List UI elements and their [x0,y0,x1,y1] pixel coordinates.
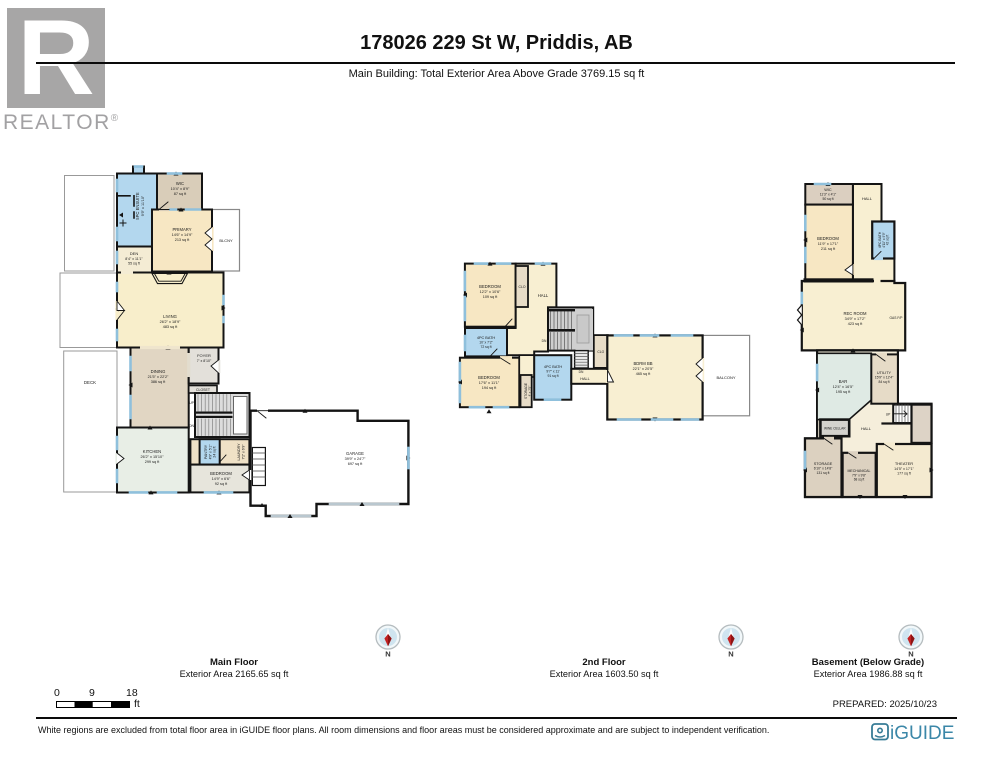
svg-text:12'4" x 16'5": 12'4" x 16'5" [833,385,854,389]
svg-text:iGUIDE: iGUIDE [890,723,954,743]
svg-text:BLCNY: BLCNY [219,238,233,243]
svg-text:195 sq ft: 195 sq ft [836,390,852,394]
svg-text:26'2" x 18'9": 26'2" x 18'9" [160,320,181,324]
svg-text:4PC BATH: 4PC BATH [544,365,563,369]
svg-text:CLO: CLO [597,350,604,354]
svg-text:92 sq ft: 92 sq ft [215,482,228,486]
svg-text:LAUNDRY: LAUNDRY [237,443,241,461]
svg-text:72 sq ft: 72 sq ft [480,345,491,349]
svg-text:177 sq ft: 177 sq ft [897,472,911,476]
svg-text:34'9" x 17'2": 34'9" x 17'2" [845,317,866,321]
svg-text:14'5" x 17'1": 14'5" x 17'1" [894,467,914,471]
svg-text:42 sq ft: 42 sq ft [886,235,890,246]
svg-text:4PC BATH: 4PC BATH [477,336,496,340]
svg-text:PANTRY: PANTRY [204,444,208,459]
svg-text:5PC ENSUITE: 5PC ENSUITE [135,192,140,220]
svg-text:BAR: BAR [839,379,848,384]
svg-text:483 sq ft: 483 sq ft [163,325,179,329]
svg-text:39'9" x 24'7": 39'9" x 24'7" [345,457,366,461]
svg-text:WIC: WIC [824,188,832,192]
svg-text:UP: UP [189,401,195,405]
svg-text:HALL: HALL [862,196,873,201]
svg-text:DN: DN [189,424,195,428]
svg-text:REC ROOM: REC ROOM [843,311,867,316]
svg-text:697 sq ft: 697 sq ft [348,462,364,466]
svg-text:BEDROOM: BEDROOM [817,236,839,241]
svg-text:HALL: HALL [861,426,872,431]
svg-text:131 sq ft: 131 sq ft [816,471,829,475]
svg-text:HALL: HALL [580,377,590,381]
svg-text:BEDROOM: BEDROOM [479,284,501,289]
svg-text:KITCHEN: KITCHEN [143,449,161,454]
svg-text:109 sq ft: 109 sq ft [483,295,499,299]
svg-text:84 sq ft: 84 sq ft [878,380,889,384]
svg-text:GARAGE: GARAGE [346,451,364,456]
svg-text:7'2" x 6'9": 7'2" x 6'9" [242,444,246,460]
svg-text:UP: UP [886,413,891,417]
svg-text:14'9" x 6'6": 14'9" x 6'6" [212,477,231,481]
svg-text:BALCONY: BALCONY [716,375,735,380]
svg-text:6'10" x 14'8": 6'10" x 14'8" [814,467,833,471]
svg-text:MECHANICAL: MECHANICAL [848,469,871,473]
svg-text:17'6" x 11'1": 17'6" x 11'1" [479,381,500,385]
svg-text:STORAGE: STORAGE [814,462,833,466]
svg-text:10'4" x 8'9": 10'4" x 8'9" [171,187,190,191]
svg-text:9'7" x 11': 9'7" x 11' [546,370,560,374]
svg-text:BEDROOM: BEDROOM [478,375,500,380]
svg-text:BDRM BB: BDRM BB [633,361,652,366]
svg-text:WIC: WIC [176,181,184,186]
svg-text:194 sq ft: 194 sq ft [482,386,498,390]
svg-text:FOYER: FOYER [197,353,211,358]
svg-text:386 sq ft: 386 sq ft [151,380,167,384]
svg-text:HALL: HALL [538,293,549,298]
svg-text:213 sq ft: 213 sq ft [175,238,191,242]
svg-text:WINE CELLAR: WINE CELLAR [824,427,846,431]
svg-text:26'2" x 15'10": 26'2" x 15'10" [141,455,165,459]
svg-text:PRIMARY: PRIMARY [172,227,191,232]
svg-text:12'2" x 10'6": 12'2" x 10'6" [480,290,501,294]
svg-text:4' x 7'5": 4' x 7'5" [528,386,532,397]
svg-text:DEN: DEN [130,251,139,256]
svg-text:7' x 8'10": 7' x 8'10" [197,359,212,363]
svg-text:68 sq ft: 68 sq ft [854,477,865,481]
svg-text:91 sq ft: 91 sq ft [547,374,558,378]
svg-text:DINING: DINING [151,369,166,374]
svg-text:211 sq ft: 211 sq ft [821,247,836,251]
svg-text:BEDROOM: BEDROOM [210,471,232,476]
svg-text:24 sq ft: 24 sq ft [213,446,217,457]
svg-text:22'1" x 20'5": 22'1" x 20'5" [633,367,654,371]
svg-text:87 sq ft: 87 sq ft [174,192,187,196]
svg-text:21'5" x 22'2": 21'5" x 22'2" [148,375,169,379]
svg-text:11'9" x 17'1": 11'9" x 17'1" [818,242,839,246]
svg-text:LIVING: LIVING [163,314,177,319]
svg-text:UTILITY: UTILITY [877,371,892,375]
svg-text:CLO: CLO [519,285,526,289]
svg-text:DN: DN [579,370,584,374]
svg-text:N: N [385,650,390,659]
svg-text:11'3" x 4'1": 11'3" x 4'1" [820,193,837,197]
svg-text:299 sq ft: 299 sq ft [145,460,161,464]
svg-text:GAS F/P: GAS F/P [889,316,903,320]
svg-text:15'9" x 12'4": 15'9" x 12'4" [875,376,894,380]
svg-text:465 sq ft: 465 sq ft [636,372,652,376]
svg-text:DECK: DECK [84,380,96,385]
svg-text:423 sq ft: 423 sq ft [848,322,864,326]
svg-text:14'6" x 14'9": 14'6" x 14'9" [172,233,193,237]
svg-text:THEATER: THEATER [895,461,913,466]
svg-text:8'4" x 11'1": 8'4" x 11'1" [125,257,143,261]
svg-text:DN: DN [542,339,547,343]
svg-text:10' x 7'2": 10' x 7'2" [479,341,493,345]
svg-text:55 sq ft: 55 sq ft [128,262,140,266]
svg-text:9'9" x 11'10": 9'9" x 11'10" [141,195,145,216]
svg-text:CLOSET: CLOSET [196,388,211,392]
svg-text:50 sq ft: 50 sq ft [822,197,833,201]
